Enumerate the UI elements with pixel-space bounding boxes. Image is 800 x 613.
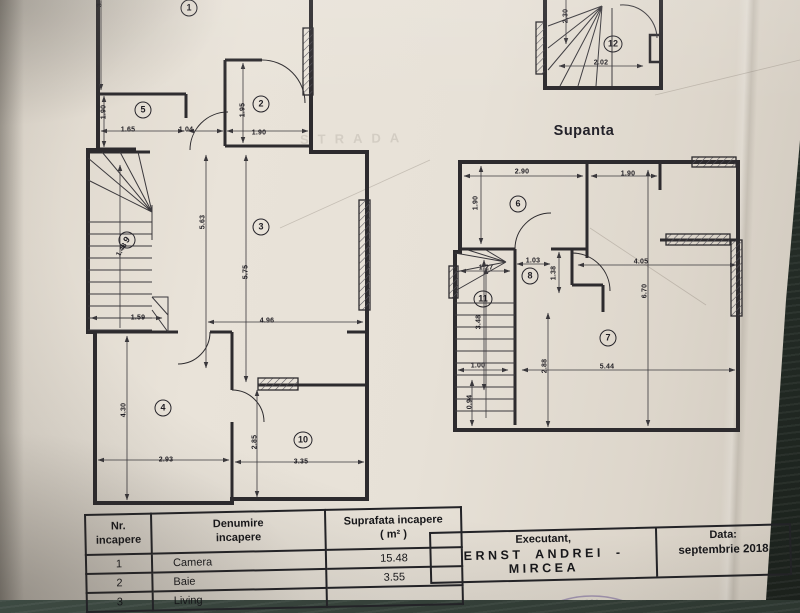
room-number-11: 11 [474,291,493,308]
executant-name: ERNST ANDREI - MIRCEA [431,544,656,577]
dimension-label: 4.30 [121,403,128,417]
date-label: Data: [659,527,787,542]
dimension-label: 5.75 [243,265,250,279]
dimension-label: 2.90 [515,169,529,176]
dimension-label: 0.94 [467,395,474,409]
dimension-label: 1.90 [621,171,635,178]
dimension-label: 1.48 [115,242,129,258]
date-cell: Data: septembrie 2018 [655,525,790,576]
room-number-4: 4 [155,400,172,417]
dimension-label: 2.88 [542,359,549,373]
dimension-label: 1.95 [240,103,247,117]
dimension-label: 1.65 [121,127,135,134]
photographed-floor-plan-page: { "photo": { "paper_color": "#e7e0d6", "… [0,0,800,600]
dimension-label: 5.44 [600,364,614,371]
cell-nr: 3 [87,592,153,612]
dimension-label: 5.63 [200,215,207,229]
room-number-8: 8 [522,268,539,285]
room-number-5: 5 [135,102,152,119]
dimension-label: 3.35 [294,459,308,466]
date-value: septembrie 2018 [659,542,787,557]
header-denumire-incapere: Denumire incapere [151,510,326,554]
room-number-2: 2 [253,96,270,113]
dimension-label: 1.90 [101,105,108,119]
cell-nr: 2 [86,573,152,593]
room-number-1: 1 [181,0,198,17]
signature-box: Executant, ERNST ANDREI - MIRCEA Data: s… [429,523,792,584]
executant-cell: Executant, ERNST ANDREI - MIRCEA [431,528,656,581]
cell-area [327,585,463,607]
dimension-label: 4.05 [634,259,648,266]
dimension-label: 1.03 [526,258,540,265]
dimension-label: 1.90 [252,130,266,137]
room-number-3: 3 [253,219,270,236]
cell-name: Living [153,588,327,611]
dimension-label: 1.00 [471,363,485,370]
cell-nr: 1 [86,554,152,574]
dimension-label: 2.30 [563,9,570,23]
dimension-label: 1.59 [131,315,145,322]
supanta-title: Supanta [554,123,615,139]
dimension-label: 1.27 [479,265,493,272]
dimension-label: 2.93 [159,457,173,464]
dimension-label: 2.85 [252,435,259,449]
room-number-12: 12 [604,36,623,53]
dimension-label: 4.96 [260,318,274,325]
dimension-label: 2.02 [594,60,608,67]
room-number-7: 7 [600,330,617,347]
dimension-label: 1.38 [551,266,558,280]
header-nr-incapere: Nr. incapere [85,514,152,555]
dimension-label: 1.90 [473,196,480,210]
dimension-label: 3. [97,1,104,7]
room-number-10: 10 [294,432,313,449]
dimension-label: 3.48 [476,315,483,329]
room-area-table: Nr. incapere Denumire incapere Suprafata… [84,506,464,613]
dimension-label: 6.70 [642,284,649,298]
dimension-label: 1.04 [179,127,193,134]
room-number-6: 6 [510,196,527,213]
